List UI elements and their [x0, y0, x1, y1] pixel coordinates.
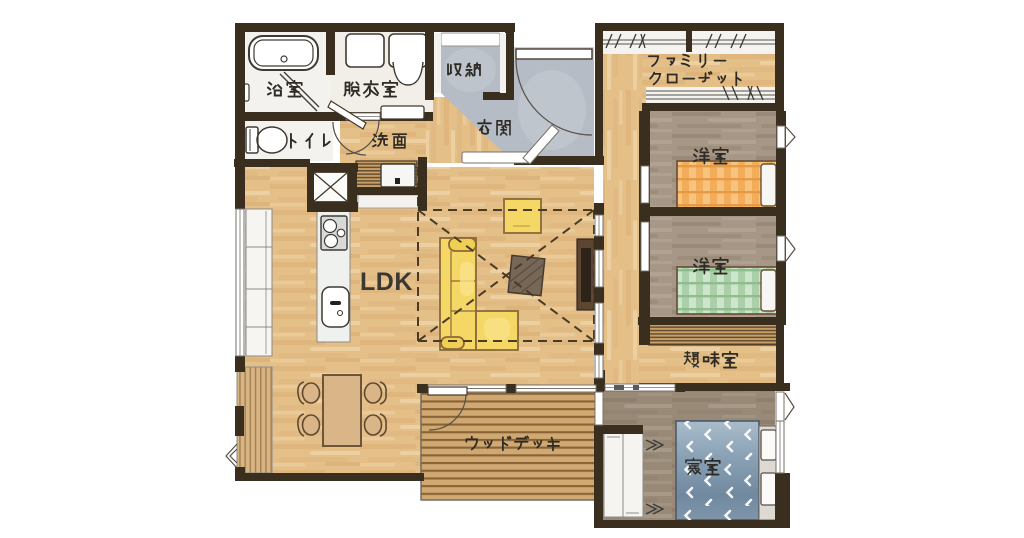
svg-text:LDK: LDK: [360, 268, 413, 296]
